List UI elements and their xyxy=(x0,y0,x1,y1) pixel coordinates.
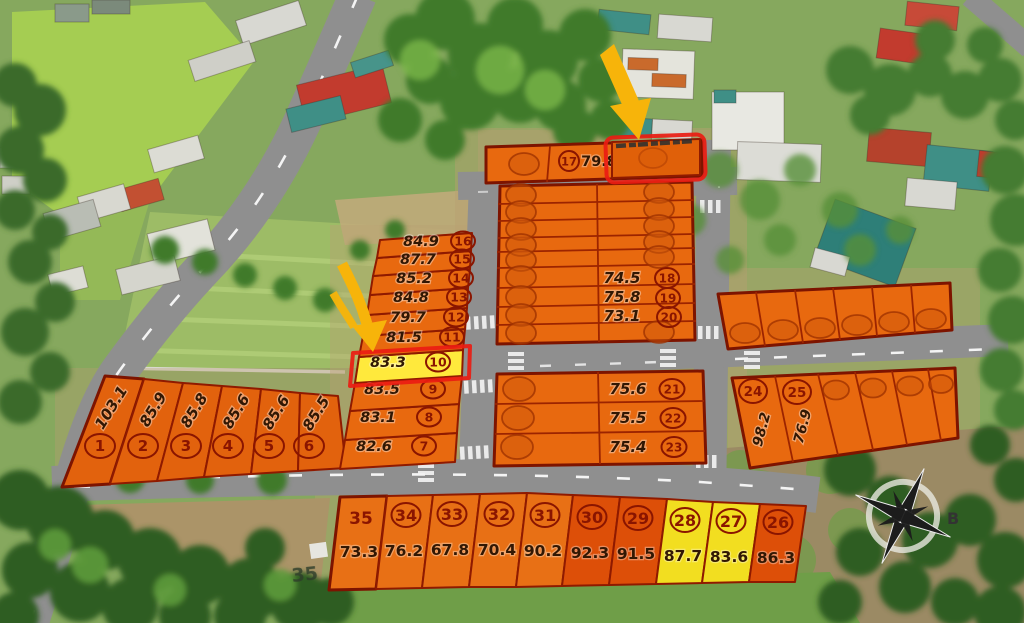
svg-text:84.8: 84.8 xyxy=(393,290,429,306)
svg-text:82.6: 82.6 xyxy=(356,439,392,455)
svg-text:10: 10 xyxy=(429,355,447,370)
central-block: 74.5 18 75.8 19 73.1 20 xyxy=(496,181,696,344)
svg-text:73.3: 73.3 xyxy=(340,543,378,561)
svg-text:75.4: 75.4 xyxy=(609,438,646,456)
top-strip: 17 79.8 xyxy=(486,139,702,183)
svg-text:87.7: 87.7 xyxy=(400,252,437,268)
left-block: 1 2 3 4 5 6 103.1 85.9 85.8 85.6 85.6 85… xyxy=(62,376,346,487)
svg-text:35: 35 xyxy=(349,509,373,529)
bottom-row-block: 35 73.3 34 76.2 33 67.8 32 70.4 31 90.2 … xyxy=(329,493,806,590)
svg-text:32: 32 xyxy=(488,505,510,524)
svg-text:86.3: 86.3 xyxy=(757,549,795,567)
svg-text:67.8: 67.8 xyxy=(431,541,469,559)
svg-text:75.5: 75.5 xyxy=(609,409,646,427)
svg-text:20: 20 xyxy=(661,311,678,325)
svg-text:75.8: 75.8 xyxy=(603,288,640,306)
svg-text:31: 31 xyxy=(534,506,556,525)
svg-text:81.5: 81.5 xyxy=(386,330,422,346)
svg-text:74.5: 74.5 xyxy=(603,269,640,287)
svg-text:1: 1 xyxy=(95,437,105,455)
svg-text:13: 13 xyxy=(450,290,467,305)
svg-text:5: 5 xyxy=(264,437,274,455)
svg-text:30: 30 xyxy=(581,508,603,527)
svg-text:9: 9 xyxy=(429,382,438,397)
svg-text:7: 7 xyxy=(420,439,429,454)
svg-text:11: 11 xyxy=(443,330,460,345)
svg-text:34: 34 xyxy=(395,506,417,525)
svg-text:83.1: 83.1 xyxy=(360,410,396,426)
svg-text:8: 8 xyxy=(425,410,434,425)
svg-text:27: 27 xyxy=(720,512,742,531)
svg-text:79.7: 79.7 xyxy=(390,310,427,326)
svg-text:19: 19 xyxy=(660,292,677,306)
svg-text:83.3: 83.3 xyxy=(370,355,406,371)
svg-text:23: 23 xyxy=(666,441,683,455)
svg-text:92.3: 92.3 xyxy=(571,544,609,562)
svg-text:22: 22 xyxy=(665,412,682,426)
svg-text:33: 33 xyxy=(441,505,463,524)
svg-text:14: 14 xyxy=(452,271,470,286)
svg-text:29: 29 xyxy=(627,509,649,528)
svg-text:85.2: 85.2 xyxy=(396,271,432,287)
svg-text:70.4: 70.4 xyxy=(478,541,516,559)
svg-text:12: 12 xyxy=(447,310,464,325)
lower-central-block: 75.6 21 75.5 22 75.4 23 xyxy=(494,371,706,466)
svg-text:28: 28 xyxy=(674,511,696,530)
svg-text:4: 4 xyxy=(223,437,233,455)
svg-text:84.9: 84.9 xyxy=(403,234,439,250)
svg-text:15: 15 xyxy=(453,252,470,267)
svg-text:76.2: 76.2 xyxy=(385,542,423,560)
svg-text:6: 6 xyxy=(304,437,314,455)
svg-text:87.7: 87.7 xyxy=(664,547,702,565)
svg-text:3: 3 xyxy=(181,437,191,455)
compass-north-label: B xyxy=(947,509,959,528)
svg-text:83.6: 83.6 xyxy=(710,548,748,566)
svg-text:73.1: 73.1 xyxy=(603,307,640,325)
svg-text:24: 24 xyxy=(744,384,763,400)
svg-text:2: 2 xyxy=(138,437,148,455)
svg-text:75.6: 75.6 xyxy=(609,380,646,398)
svg-text:17: 17 xyxy=(561,155,577,169)
svg-text:18: 18 xyxy=(659,272,676,286)
aerial-plot-map: 35 B 1 2 3 4 5 6 1 xyxy=(0,0,1024,623)
svg-text:16: 16 xyxy=(454,234,472,249)
svg-text:26: 26 xyxy=(767,513,789,532)
svg-text:25: 25 xyxy=(788,385,807,401)
svg-text:21: 21 xyxy=(664,383,681,397)
svg-text:91.5: 91.5 xyxy=(617,545,655,563)
ground-label-35: 35 xyxy=(290,562,319,587)
svg-text:90.2: 90.2 xyxy=(524,542,562,560)
